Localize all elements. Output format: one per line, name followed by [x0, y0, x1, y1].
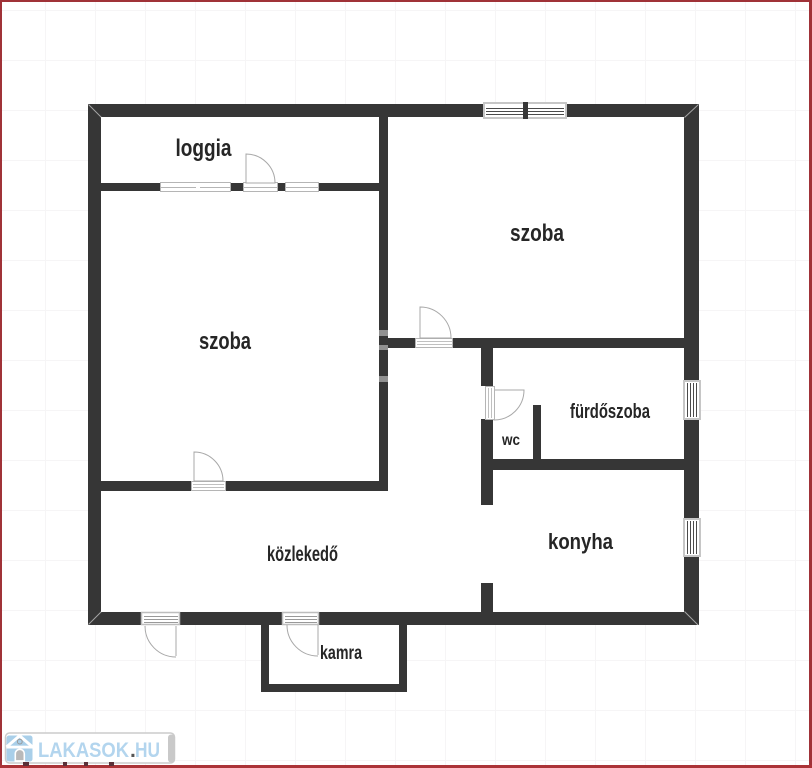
- svg-text:LAKASOK: LAKASOK: [38, 739, 129, 762]
- svg-text:szoba: szoba: [199, 328, 251, 355]
- svg-text:HU: HU: [135, 739, 160, 762]
- svg-text:közlekedő: közlekedő: [267, 543, 338, 566]
- svg-text:kamra: kamra: [320, 643, 362, 664]
- svg-text:szoba: szoba: [510, 220, 565, 247]
- svg-text:loggia: loggia: [176, 135, 233, 162]
- svg-text:wc: wc: [501, 432, 520, 449]
- svg-text:fürdőszoba: fürdőszoba: [570, 401, 651, 423]
- svg-text:konyha: konyha: [548, 529, 614, 554]
